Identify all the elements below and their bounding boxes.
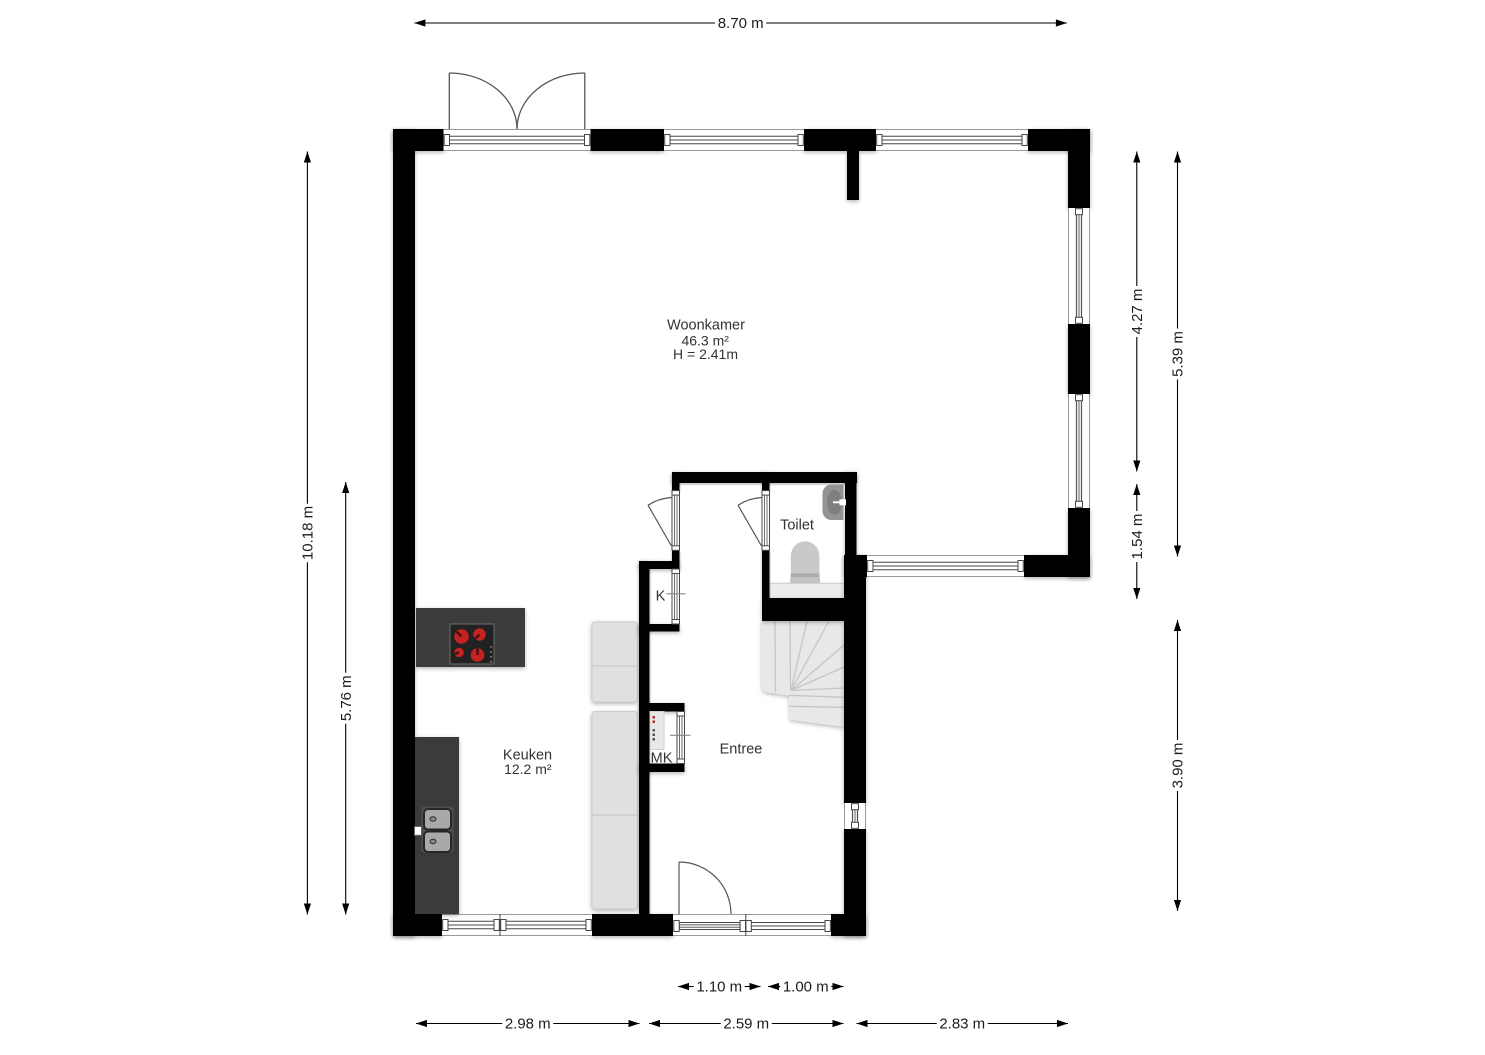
svg-text:8.70 m: 8.70 m (718, 15, 764, 32)
svg-text:5.39 m: 5.39 m (1170, 331, 1187, 377)
svg-text:MK: MK (651, 751, 673, 767)
svg-text:1.00 m: 1.00 m (783, 979, 829, 996)
svg-text:Entree: Entree (720, 742, 763, 758)
svg-text:2.98 m: 2.98 m (505, 1016, 551, 1033)
svg-text:K: K (656, 589, 666, 605)
svg-text:Woonkamer: Woonkamer (667, 317, 745, 333)
svg-text:5.76 m: 5.76 m (338, 675, 355, 721)
svg-text:4.27 m: 4.27 m (1129, 289, 1146, 335)
svg-text:1.10 m: 1.10 m (696, 979, 742, 996)
svg-text:H = 2.41m: H = 2.41m (673, 346, 738, 362)
svg-text:12.2 m²: 12.2 m² (504, 761, 552, 777)
svg-text:Toilet: Toilet (780, 517, 814, 533)
svg-text:3.90 m: 3.90 m (1170, 743, 1187, 789)
svg-text:1.54 m: 1.54 m (1129, 514, 1146, 560)
svg-text:2.83 m: 2.83 m (939, 1016, 985, 1033)
svg-text:2.59 m: 2.59 m (723, 1016, 769, 1033)
svg-text:10.18 m: 10.18 m (300, 506, 317, 560)
